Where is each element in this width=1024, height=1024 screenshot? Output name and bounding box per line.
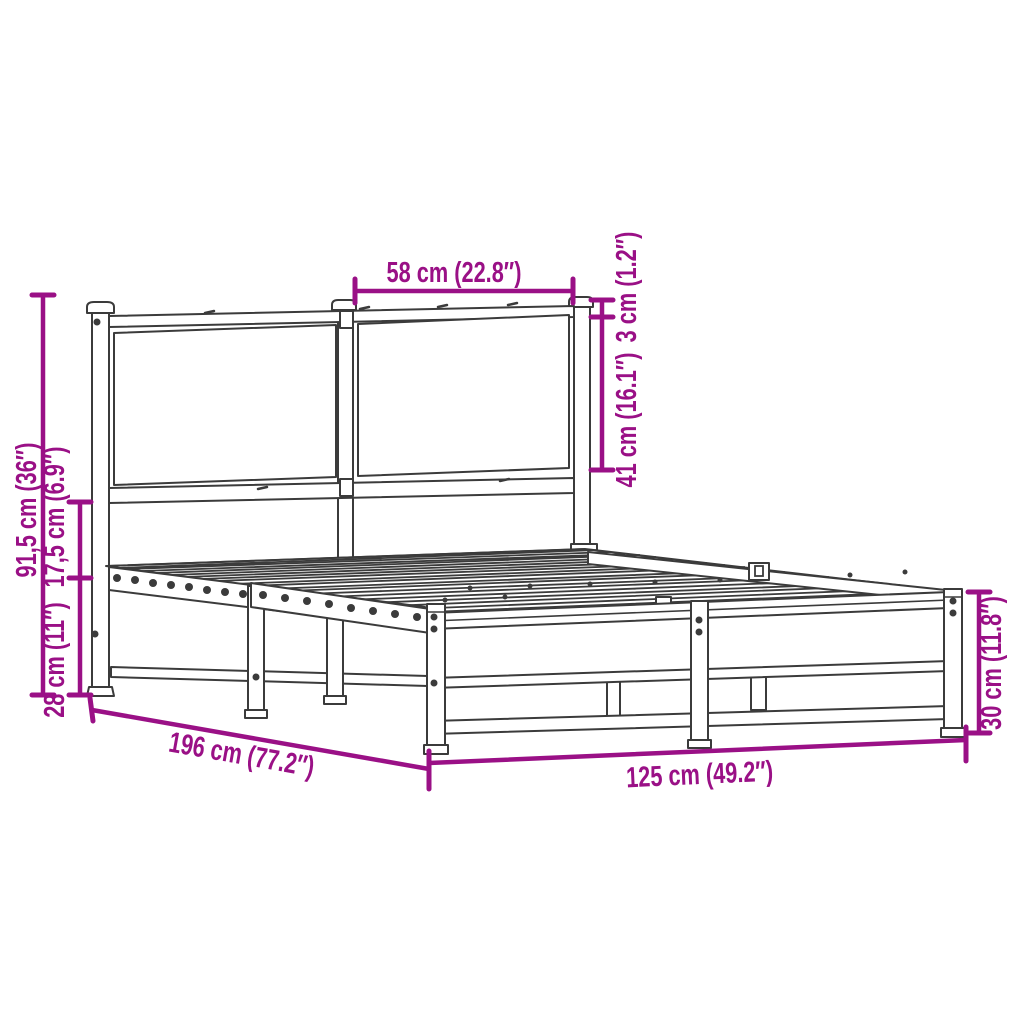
headboard-post-mid (338, 310, 353, 559)
bed-frame-drawing (87, 297, 965, 754)
post-cap-left (87, 302, 114, 313)
label-footboard-height: 30 cm (11.8″) (976, 596, 1008, 730)
footboard-assembly (432, 589, 965, 748)
headboard-panel-left (114, 325, 336, 485)
post-bolt (92, 631, 99, 638)
mid-post-bracket-bottom (340, 479, 353, 496)
headboard-panel-right (358, 315, 569, 476)
label-headboard-height: 91,5 cm (36″) (11, 443, 43, 578)
side-stretcher-bar (111, 667, 428, 686)
dimension-rail-and-clearance: 17,5 cm (6.9″) 28 cm (11″) (39, 447, 91, 718)
bed-frame-dimension-diagram: 91,5 cm (36″) 17,5 cm (6.9″) 28 cm (11″)… (0, 0, 1024, 1024)
dimension-footboard-height: 30 cm (11.8″) (968, 592, 1008, 733)
label-bed-width: 125 cm (49.2″) (625, 756, 773, 794)
post-cap-mid (332, 300, 356, 310)
dimension-cap-gap-and-panel-height: 3 cm (1.2″) 41 cm (16.1″) (591, 232, 643, 488)
foot-right-leg (941, 589, 965, 737)
diagram-stage: 91,5 cm (36″) 17,5 cm (6.9″) 28 cm (11″)… (0, 0, 1024, 1024)
dimension-panel-width: 58 cm (22.8″) (355, 257, 573, 303)
foot-center-leg (688, 601, 711, 748)
foot-left-leg (424, 604, 448, 754)
label-side-rail-height: 17,5 cm (6.9″) (39, 447, 71, 588)
headboard-post-left (92, 313, 109, 695)
dimension-tick (90, 698, 93, 721)
label-under-bed-clearance: 28 cm (11″) (39, 602, 71, 718)
label-headboard-panel-height: 41 cm (16.1″) (611, 353, 643, 488)
center-support-leg (324, 613, 346, 704)
label-post-cap-gap: 3 cm (1.2″) (611, 232, 643, 343)
post-bolt (94, 319, 101, 326)
mid-post-bracket-top (340, 311, 353, 328)
label-headboard-panel-width: 58 cm (22.8″) (387, 257, 522, 289)
foot-connector-right (751, 674, 766, 710)
headboard-post-right (574, 307, 590, 552)
